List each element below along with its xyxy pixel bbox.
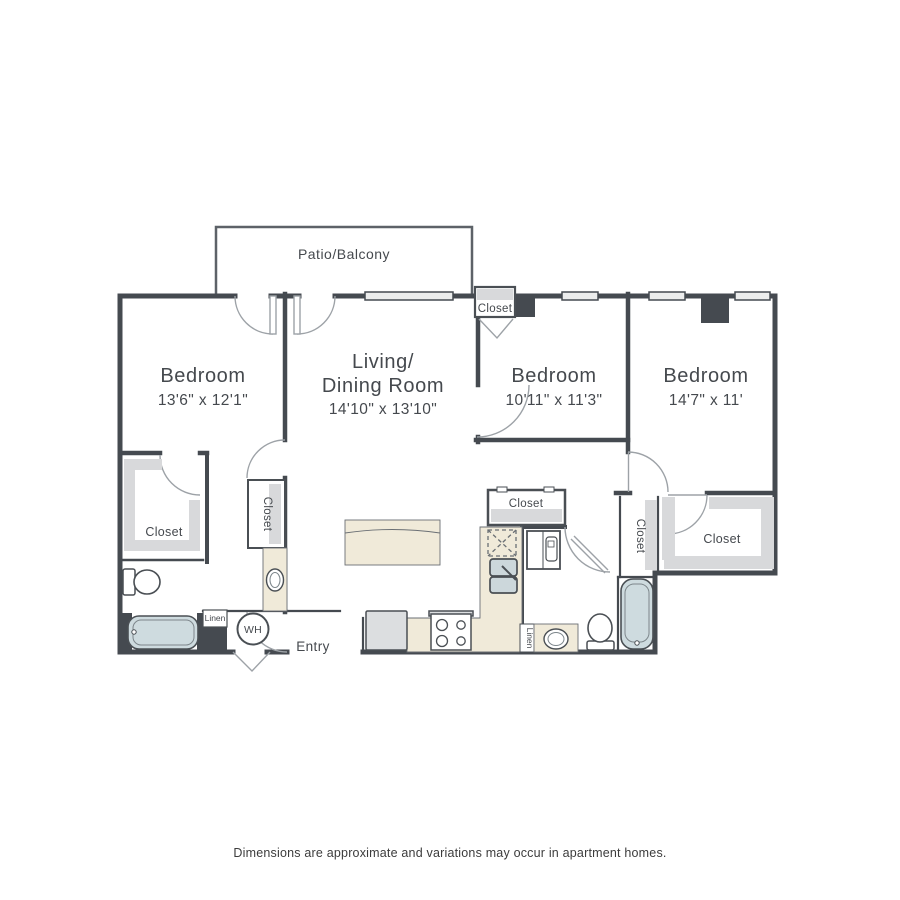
bathtub2-faucet-icon [635, 641, 639, 645]
bedroom1-dims: 13'6" x 12'1" [158, 392, 248, 409]
closet-kitchen-tick-right [544, 487, 554, 492]
toilet2-bowl-icon [588, 614, 612, 642]
closet-bedroom2-label: Closet [634, 519, 646, 554]
column-top-center [515, 296, 535, 317]
closet-kitchen-label: Closet [509, 498, 544, 510]
door-arc-bedroom3 [628, 452, 668, 492]
door-arc-patio-bedroom1 [235, 296, 273, 334]
refrigerator-icon [366, 611, 407, 650]
door-bifold-wh [233, 652, 270, 671]
window-bedroom2 [562, 292, 598, 300]
door-arc-patio-living [297, 296, 335, 334]
door-arc-walkin-closet [160, 455, 200, 495]
washer-dryer-door [546, 537, 557, 561]
patio-label: Patio/Balcony [298, 246, 390, 262]
washer-dryer-control [548, 541, 554, 547]
toilet1-bowl-icon [134, 570, 160, 594]
bathtub1-icon [128, 616, 198, 649]
exterior-walls [120, 296, 775, 652]
closet-top-center-label: Closet [478, 303, 513, 315]
linen1-label: Linen [205, 613, 226, 623]
window-bedroom3-left [649, 292, 685, 300]
bedroom2-name: Bedroom [511, 365, 596, 387]
closet-walkin-band-right [189, 500, 200, 551]
column-bedroom3 [701, 296, 729, 323]
kitchen-sink-bowl2-icon [490, 577, 517, 593]
stove-burner-2 [457, 621, 465, 629]
bedroom3-name: Bedroom [663, 365, 748, 387]
wall-right [335, 296, 775, 652]
door-arc-bedroom1 [247, 440, 285, 478]
disclaimer-text: Dimensions are approximate and variation… [0, 846, 900, 860]
bathtub1-faucet-icon [132, 630, 136, 634]
wall-stub-under-linen [203, 627, 227, 652]
window-bedroom3-right [735, 292, 770, 300]
wall-left [120, 296, 235, 652]
closet-walkin-band-bottom [124, 540, 200, 551]
closet-walkin-label: Closet [145, 525, 182, 539]
closet-kitchen-band [491, 509, 562, 522]
door-leaf-patio-bedroom1 [270, 296, 276, 334]
closet-hall-label: Closet [261, 497, 273, 532]
closet-kitchen-tick-left [497, 487, 507, 492]
floor-plan-page: Patio/Balcony Bedroom 13'6" x 12'1" Livi… [0, 0, 900, 900]
living-furniture [345, 520, 440, 565]
door-leaf-bath2-a [574, 536, 608, 570]
door-bifold-top-closet [479, 319, 513, 338]
stove-burner-4 [457, 637, 465, 645]
closet-bedroom3-band-left [662, 497, 675, 560]
closet-top-center-band [477, 289, 513, 300]
door-leaf-patio-living [294, 296, 300, 334]
stove-burner-1 [437, 620, 448, 631]
closet-bedroom3-label: Closet [703, 532, 740, 546]
stove-burner-3 [437, 636, 448, 647]
interior-walls [120, 294, 775, 652]
floor-plan-drawing: Patio/Balcony Bedroom 13'6" x 12'1" Livi… [0, 0, 900, 900]
stove-icon [431, 614, 471, 650]
linen2-label: Linen [525, 628, 535, 649]
bedroom2-dims: 10'11" x 11'3" [506, 392, 603, 409]
living-dims: 14'10" x 13'10" [329, 401, 437, 418]
window-living [365, 292, 453, 300]
water-heater-label: WH [244, 624, 262, 636]
console-table [345, 520, 440, 565]
bedroom1-name: Bedroom [160, 365, 245, 387]
bedroom3-dims: 14'7" x 11' [669, 392, 743, 409]
closet-walkin-band-left [124, 459, 135, 551]
living-name-line1: Living/ [352, 351, 414, 373]
living-name-line2: Dining Room [322, 375, 444, 397]
closet-bedroom3-band-bottom [664, 556, 774, 569]
entry-label: Entry [296, 639, 330, 654]
closets [124, 287, 774, 570]
